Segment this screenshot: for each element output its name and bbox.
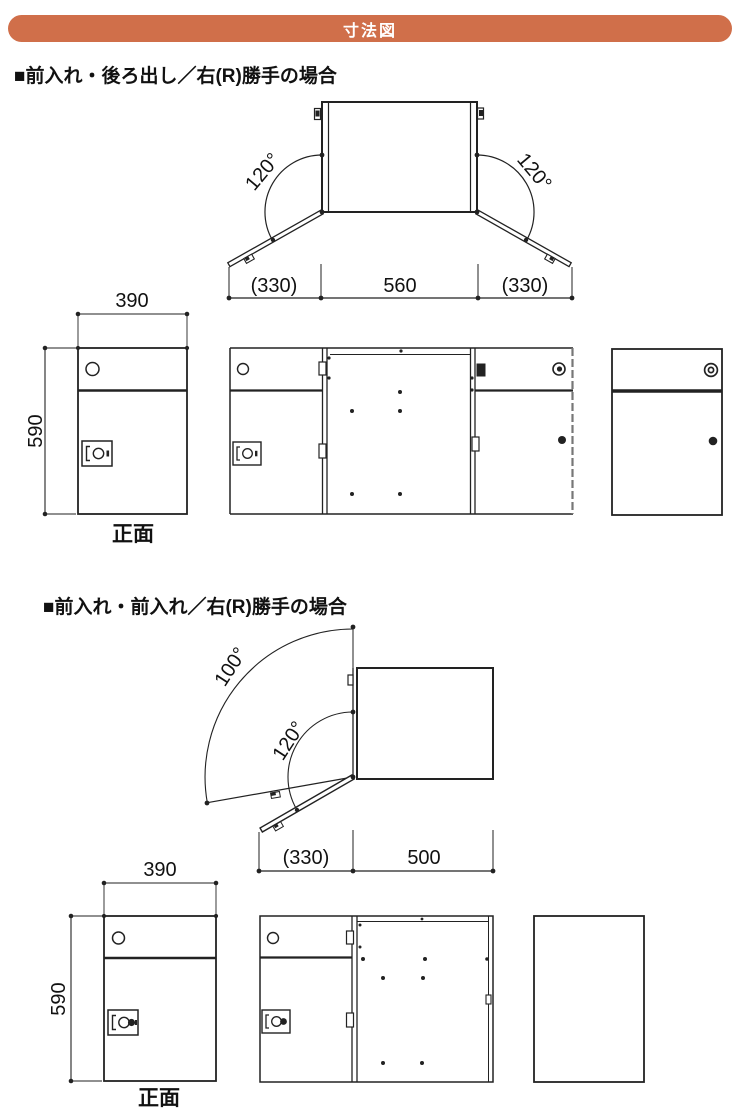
s1-width-label: 390 bbox=[115, 290, 148, 312]
keyhole-icon bbox=[553, 363, 565, 375]
lock-icon bbox=[233, 442, 261, 465]
latch-icon bbox=[486, 995, 491, 1004]
s1-rear-view bbox=[612, 349, 722, 515]
knob-icon bbox=[558, 436, 566, 444]
s1-height-label: 590 bbox=[25, 414, 47, 447]
s2-front-view: 390 590 正面 bbox=[48, 859, 218, 1110]
hinge-icon bbox=[472, 437, 479, 451]
s1-top-dimension: (330) 560 (330) bbox=[227, 264, 575, 300]
latch-icon bbox=[270, 791, 280, 798]
s2-angle-outer: 100° bbox=[211, 644, 252, 691]
latch-icon bbox=[477, 364, 486, 377]
s2-top-view: 100° 120° (330) 500 bbox=[205, 625, 496, 874]
s2-height-dimension: 590 bbox=[48, 914, 102, 1084]
s1-width-dimension: 390 bbox=[76, 290, 190, 350]
s2-angle-inner: 120° bbox=[269, 718, 310, 765]
s2-front-caption: 正面 bbox=[138, 1087, 180, 1110]
latch-icon bbox=[348, 675, 353, 685]
open-door-left bbox=[228, 210, 326, 271]
knob-icon bbox=[709, 437, 718, 446]
s2-rear-view bbox=[534, 916, 644, 1082]
lock-icon bbox=[262, 1010, 290, 1033]
s1-angle-right: 120° bbox=[512, 149, 555, 195]
lock-icon bbox=[82, 441, 112, 466]
open-door-right bbox=[473, 210, 571, 271]
s1-unfolded-view bbox=[230, 348, 573, 514]
s2-width-label: 390 bbox=[143, 859, 176, 881]
s1-angle-left: 120° bbox=[241, 149, 284, 195]
s1-front-view: 390 590 正面 bbox=[25, 290, 189, 546]
s1-height-dimension: 590 bbox=[25, 346, 76, 517]
s2-unfolded-view bbox=[260, 916, 493, 1082]
dimension-drawing: 120° 120° (330) 560 (330) bbox=[0, 0, 740, 1111]
s2-dim-left: (330) bbox=[283, 847, 330, 869]
s2-top-dimension: (330) 500 bbox=[257, 830, 496, 873]
lock-icon bbox=[108, 1010, 138, 1035]
s1-dim-right: (330) bbox=[502, 275, 549, 297]
push-hole-icon bbox=[238, 364, 249, 375]
s1-dim-left: (330) bbox=[251, 275, 298, 297]
s1-front-caption: 正面 bbox=[112, 523, 154, 546]
s2-dim-right: 500 bbox=[407, 847, 440, 869]
s1-dim-center: 560 bbox=[383, 275, 416, 297]
s2-width-dimension: 390 bbox=[102, 859, 219, 918]
s1-top-view: 120° 120° (330) 560 (330) bbox=[227, 102, 575, 300]
s2-height-label: 590 bbox=[48, 982, 70, 1015]
